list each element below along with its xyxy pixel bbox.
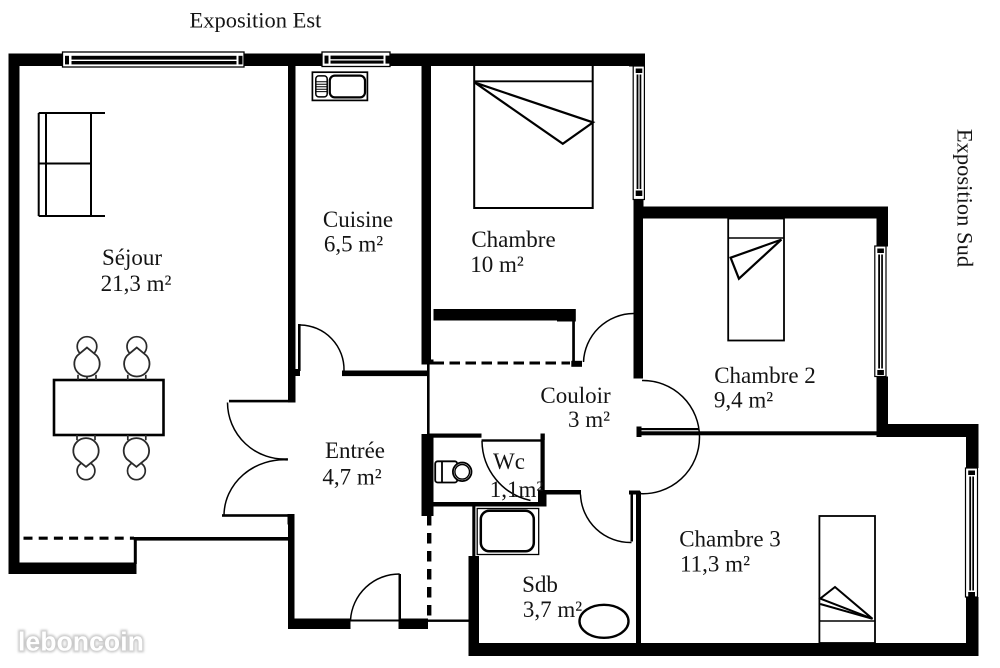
svg-text:Exposition Sud: Exposition Sud — [953, 129, 978, 267]
svg-text:3,7 m²: 3,7 m² — [523, 597, 582, 622]
svg-text:Cuisine: Cuisine — [323, 207, 393, 232]
svg-text:1,1m²: 1,1m² — [490, 477, 544, 502]
svg-text:Chambre 2: Chambre 2 — [714, 363, 816, 388]
svg-text:Entrée: Entrée — [325, 438, 385, 463]
svg-text:Chambre: Chambre — [471, 227, 555, 252]
svg-text:6,5 m²: 6,5 m² — [324, 232, 383, 257]
svg-text:10 m²: 10 m² — [470, 252, 524, 277]
svg-text:Chambre 3: Chambre 3 — [679, 527, 781, 552]
svg-text:3 m²: 3 m² — [568, 407, 610, 432]
svg-text:11,3 m²: 11,3 m² — [680, 552, 750, 577]
svg-text:Wc: Wc — [493, 449, 525, 474]
svg-text:4,7 m²: 4,7 m² — [322, 465, 381, 490]
svg-text:21,3 m²: 21,3 m² — [101, 271, 172, 296]
svg-text:Exposition Est: Exposition Est — [190, 8, 323, 33]
svg-text:Sdb: Sdb — [522, 572, 558, 597]
svg-text:9,4 m²: 9,4 m² — [714, 388, 773, 413]
svg-text:leboncoin: leboncoin — [18, 627, 144, 657]
svg-text:Couloir: Couloir — [540, 383, 611, 408]
svg-text:Séjour: Séjour — [102, 245, 162, 270]
